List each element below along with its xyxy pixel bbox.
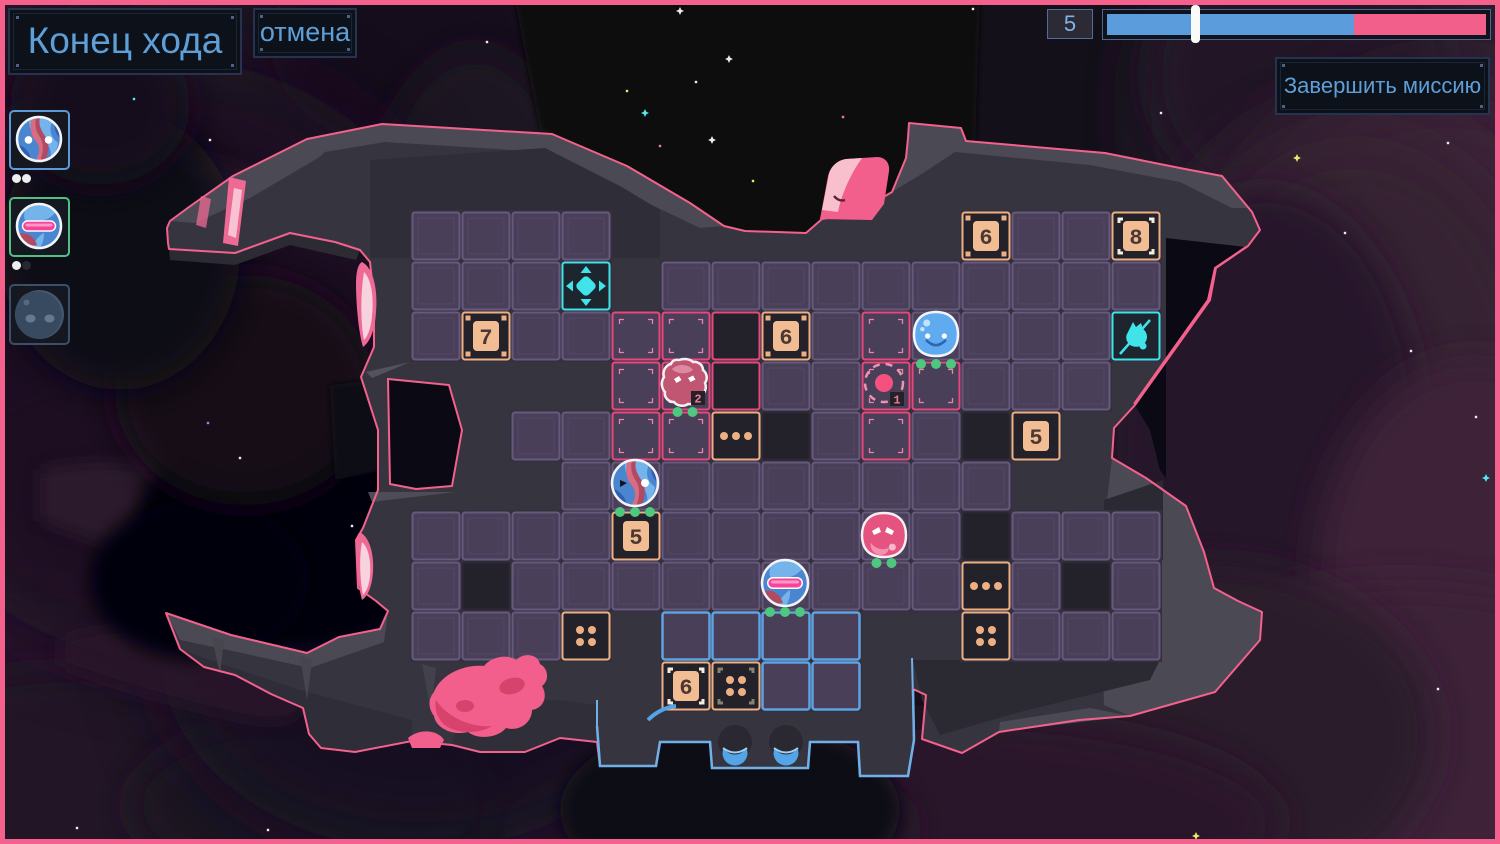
svg-text:6: 6	[779, 326, 792, 351]
svg-text:2: 2	[694, 393, 701, 407]
svg-text:1: 1	[893, 394, 900, 408]
svg-text:5: 5	[1029, 426, 1042, 451]
svg-text:6: 6	[979, 226, 992, 251]
svg-text:8: 8	[1129, 226, 1142, 251]
svg-text:6: 6	[679, 676, 692, 701]
svg-text:5: 5	[629, 526, 642, 551]
svg-text:7: 7	[479, 326, 492, 351]
